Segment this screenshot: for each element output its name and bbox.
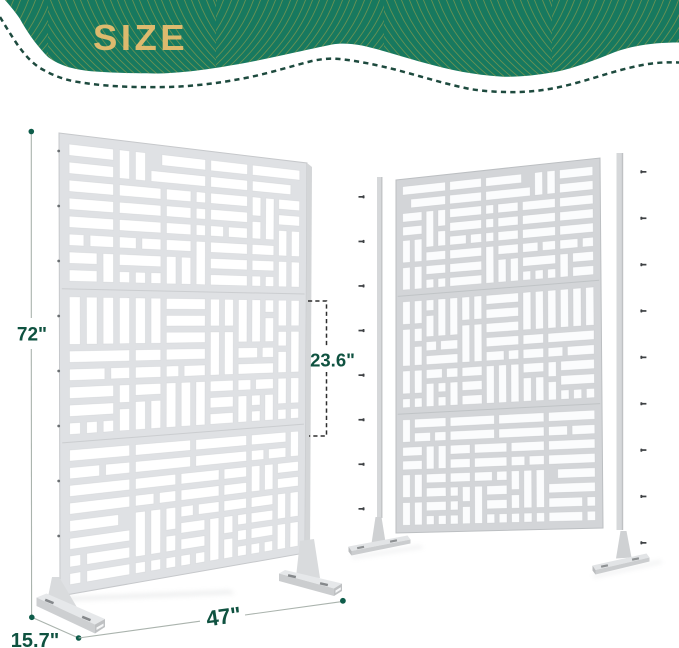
svg-text:23.6": 23.6" — [310, 350, 355, 371]
svg-text:47": 47" — [205, 602, 243, 632]
svg-text:SIZE: SIZE — [93, 17, 188, 58]
svg-text:15.7": 15.7" — [11, 630, 59, 648]
svg-text:72": 72" — [17, 325, 47, 346]
